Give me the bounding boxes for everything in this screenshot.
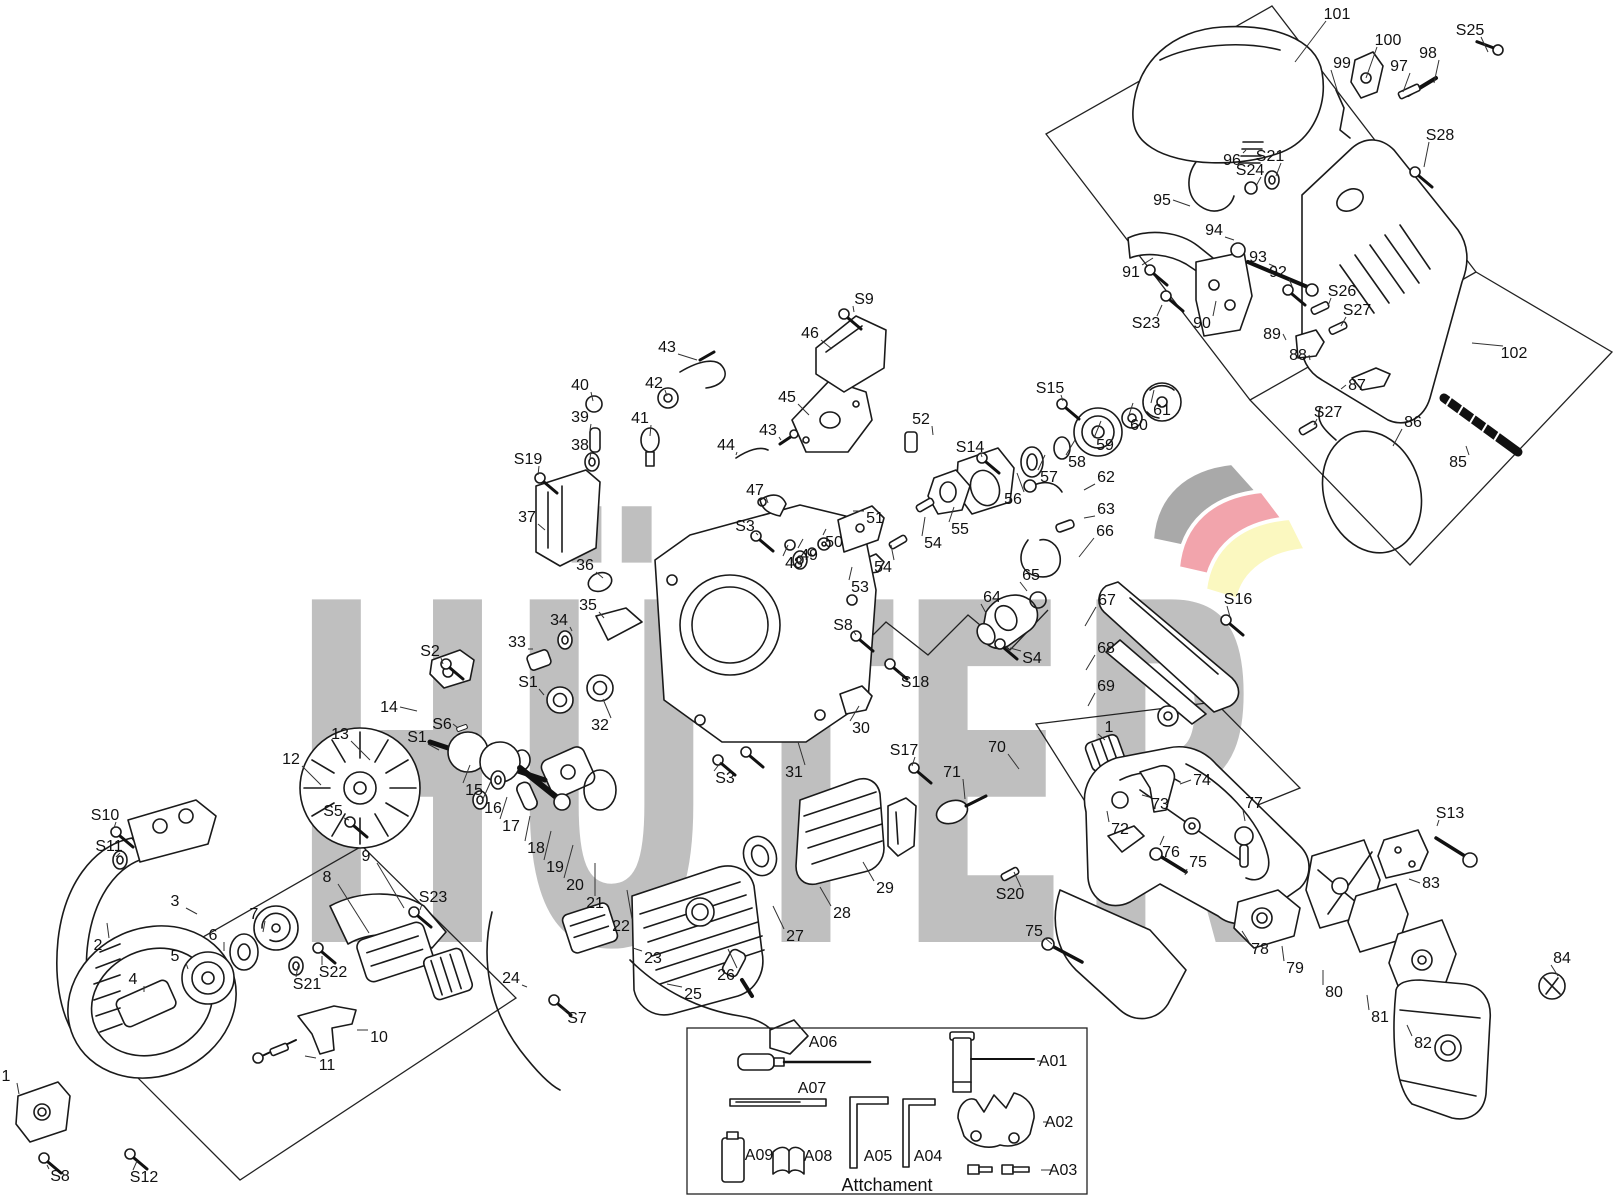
part-label: 69 (1097, 678, 1115, 695)
part-label: 90 (1193, 315, 1211, 332)
leader-line (1282, 946, 1284, 961)
part-label: 67 (1098, 592, 1116, 609)
part-label: 36 (576, 557, 594, 574)
part-label: S21 (1256, 148, 1285, 165)
part-label: 12 (282, 751, 300, 768)
part-label: A09 (745, 1147, 774, 1164)
part-label: 33 (508, 634, 526, 651)
part-label: 13 (331, 726, 349, 743)
part-label: 88 (1289, 347, 1307, 364)
part-label: 75 (1189, 854, 1207, 871)
part-label: S26 (1328, 283, 1357, 300)
part-label: 1 (2, 1068, 11, 1085)
leader-line (305, 1056, 316, 1058)
part-label: 94 (1205, 222, 1223, 239)
part-label: S27 (1314, 404, 1343, 421)
part-label: 48 (785, 555, 803, 572)
part-label: 60 (1130, 417, 1148, 434)
part-label: 53 (851, 579, 869, 596)
part-label: S11 (95, 838, 122, 855)
part-label: 19 (546, 859, 564, 876)
part-label: 84 (1553, 950, 1571, 967)
part-label: 45 (778, 389, 796, 406)
part-label: S12 (130, 1169, 159, 1186)
part-label: S8 (833, 617, 853, 634)
leader-line (678, 354, 697, 360)
part-label: 42 (645, 375, 663, 392)
part-label: S3 (735, 518, 755, 535)
part-label: 99 (1333, 55, 1351, 72)
part-label: 9 (362, 848, 371, 865)
leader-line (736, 452, 737, 455)
part-label: S6 (432, 716, 452, 733)
part-label: 57 (1040, 469, 1058, 486)
part-label: 29 (876, 880, 894, 897)
part-label: 37 (518, 509, 536, 526)
part-label: 80 (1325, 984, 1343, 1001)
part-label: 95 (1153, 192, 1171, 209)
exploded-parts-diagram: HÜTER (0, 0, 1618, 1196)
part-label: 8 (323, 869, 332, 886)
part-label: 27 (786, 928, 804, 945)
part-label: 38 (571, 437, 589, 454)
part-label: S14 (956, 439, 985, 456)
part-label: 23 (644, 950, 662, 967)
leader-line (1331, 70, 1338, 93)
part-label: 39 (571, 409, 589, 426)
part-label: 5 (171, 948, 180, 965)
part-label: A01 (1039, 1053, 1068, 1070)
leader-line (1367, 995, 1369, 1010)
part-label: 3 (171, 893, 180, 910)
leader-line (47, 1165, 49, 1169)
part-label: 65 (1022, 567, 1040, 584)
leader-line (779, 437, 781, 440)
part-label: 31 (785, 764, 803, 781)
attachment-box: Attchament (687, 1028, 1087, 1195)
part-label: 4 (129, 971, 138, 988)
part-label: S21 (293, 976, 322, 993)
leader-line (17, 1083, 19, 1094)
part-label: 16 (484, 800, 502, 817)
part-label: 73 (1151, 796, 1169, 813)
part-label: 70 (988, 739, 1006, 756)
attachment-box-caption: Attchament (841, 1175, 932, 1195)
part-label: 83 (1422, 875, 1440, 892)
part-label: A03 (1049, 1162, 1078, 1179)
part-label: 98 (1419, 45, 1437, 62)
leader-line (1173, 200, 1190, 206)
part-label: S13 (1436, 805, 1465, 822)
leader-line (107, 923, 109, 938)
part-label: 41 (631, 410, 649, 427)
part-label: 77 (1245, 795, 1263, 812)
part-label: 34 (550, 612, 568, 629)
part-label: 91 (1122, 264, 1140, 281)
part-label: 28 (833, 905, 851, 922)
part-label: A07 (798, 1080, 827, 1097)
leader-line (1084, 484, 1095, 490)
part-label: 72 (1111, 821, 1129, 838)
part-label: 26 (717, 967, 735, 984)
part-label: S22 (319, 964, 348, 981)
part-label: S18 (901, 674, 930, 691)
part-label: 51 (866, 510, 884, 527)
part-label: S19 (514, 451, 543, 468)
part-label: 14 (380, 699, 398, 716)
part-label: 54 (874, 559, 892, 576)
part-label: 43 (658, 339, 676, 356)
part-label: 75 (1025, 923, 1043, 940)
part-label: 54 (924, 535, 942, 552)
part-label: S8 (50, 1168, 70, 1185)
part-label: A04 (914, 1148, 943, 1165)
part-label: S15 (1036, 380, 1065, 397)
part-label: 7 (250, 906, 259, 923)
part-label: 40 (571, 377, 589, 394)
part-label: 64 (983, 589, 1001, 606)
part-label: 61 (1153, 402, 1171, 419)
part-label: 62 (1097, 469, 1115, 486)
part-label: S17 (890, 742, 919, 759)
leader-line (1283, 334, 1286, 340)
part-label: 78 (1251, 941, 1269, 958)
part-label: 30 (852, 720, 870, 737)
part-label: 87 (1348, 377, 1366, 394)
part-label: S1 (407, 729, 427, 746)
part-label: 68 (1097, 640, 1115, 657)
part-label: S9 (854, 291, 874, 308)
part-label: 50 (825, 534, 843, 551)
part-label: S10 (91, 807, 120, 824)
part-label: 22 (612, 918, 630, 935)
part-label: 11 (319, 1057, 336, 1074)
parts-diagram-page: HÜTER (0, 0, 1618, 1196)
part-label: A05 (864, 1148, 893, 1165)
part-label: 81 (1371, 1009, 1389, 1026)
part-label: S16 (1224, 591, 1253, 608)
part-label: 10 (370, 1029, 388, 1046)
part-label: 85 (1449, 454, 1467, 471)
part-label: 58 (1068, 454, 1086, 471)
part-label: S20 (996, 886, 1025, 903)
part-label: 59 (1096, 437, 1114, 454)
part-label: 15 (465, 782, 483, 799)
part-label: A08 (804, 1148, 833, 1165)
part-label: 24 (502, 970, 520, 987)
leader-line (932, 426, 933, 435)
part-label: 56 (1004, 491, 1022, 508)
part-label: S5 (323, 803, 343, 820)
part-label: S25 (1456, 22, 1485, 39)
part-label: A06 (809, 1034, 838, 1051)
part-label: 79 (1286, 960, 1304, 977)
part-label: S1 (518, 674, 538, 691)
part-label: 20 (566, 877, 584, 894)
part-label: S2 (420, 643, 440, 660)
part-label: 44 (717, 437, 735, 454)
part-label: S23 (1132, 315, 1161, 332)
leader-line (1472, 343, 1503, 346)
part-label: 1 (1105, 719, 1114, 736)
leader-line (1393, 429, 1402, 446)
part-label: 74 (1193, 772, 1211, 789)
part-label: 32 (591, 717, 609, 734)
leader-line (1225, 237, 1234, 240)
part-label: 25 (684, 986, 702, 1003)
part-label: S7 (567, 1010, 587, 1027)
part-label: 66 (1096, 523, 1114, 540)
part-label: S27 (1343, 302, 1372, 319)
leader-line (1424, 142, 1429, 167)
part-label: 43 (759, 422, 777, 439)
part-label: 86 (1404, 414, 1422, 431)
part-label: 100 (1375, 32, 1402, 49)
part-label: 55 (951, 521, 969, 538)
part-label: 76 (1162, 844, 1180, 861)
part-label: S23 (419, 889, 448, 906)
part-label: 93 (1249, 249, 1267, 266)
leader-line (1017, 473, 1024, 492)
part-label: 97 (1390, 58, 1408, 75)
part-label: 2 (94, 937, 103, 954)
part-label: 17 (502, 818, 520, 835)
part-label: S28 (1426, 127, 1455, 144)
part-label: 21 (586, 895, 604, 912)
part-label: 71 (943, 764, 961, 781)
part-label: 46 (801, 325, 819, 342)
part-label: 92 (1269, 264, 1287, 281)
leader-line (186, 908, 197, 914)
part-label: 47 (746, 482, 764, 499)
part-label: 52 (912, 411, 930, 428)
part-label: 89 (1263, 326, 1281, 343)
leader-line (1409, 879, 1420, 883)
part-label: 63 (1097, 501, 1115, 518)
part-label: 35 (579, 597, 597, 614)
part-label: 102 (1501, 345, 1528, 362)
part-label: 18 (527, 840, 545, 857)
part-label: 6 (209, 927, 218, 944)
part-label: 101 (1324, 6, 1351, 23)
part-label: A02 (1045, 1114, 1074, 1131)
part-label: S4 (1022, 650, 1042, 667)
part-label: 82 (1414, 1035, 1432, 1052)
part-label: S3 (715, 770, 735, 787)
